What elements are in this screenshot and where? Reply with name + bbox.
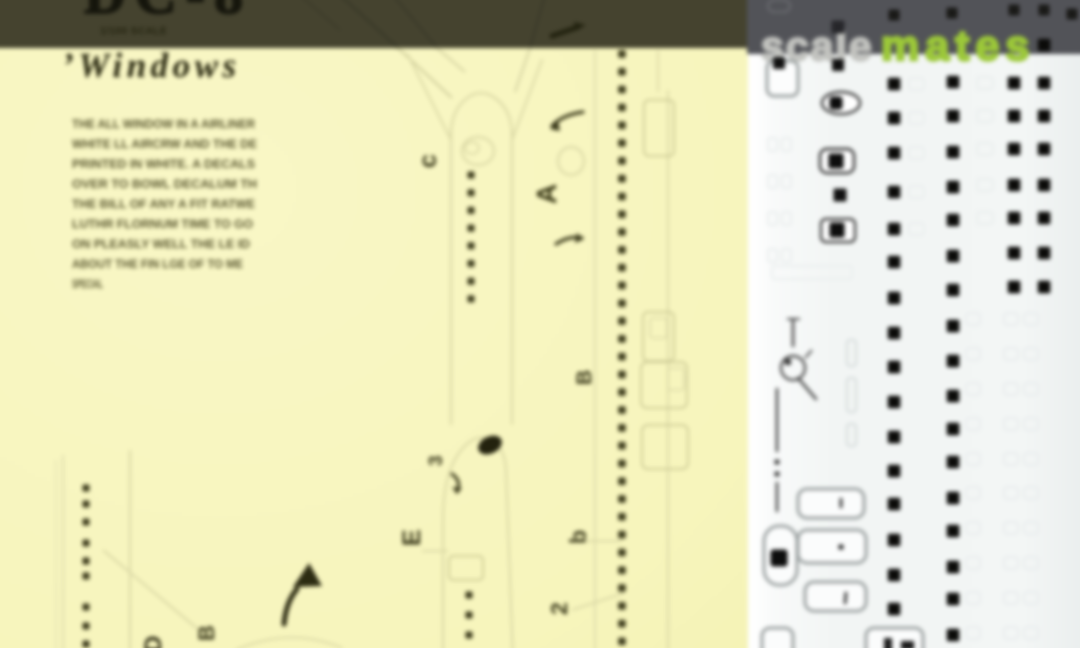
svg-text:B: B xyxy=(194,625,219,641)
svg-text:D: D xyxy=(140,636,167,648)
svg-text:LUTHR FLORNUM TIME TO GO: LUTHR FLORNUM TIME TO GO xyxy=(72,219,253,231)
svg-text:SPECIAL: SPECIAL xyxy=(72,279,103,291)
svg-text:2: 2 xyxy=(546,602,572,615)
svg-text:DC-8: DC-8 xyxy=(84,0,252,26)
svg-text:OVER TO BOWL DECALUM TH: OVER TO BOWL DECALUM TH xyxy=(72,179,257,191)
svg-text:E: E xyxy=(398,529,426,546)
svg-text:3: 3 xyxy=(426,455,447,466)
svg-text:mates: mates xyxy=(881,22,1035,70)
svg-text:ABOUT THE FIN LGE OF TO ME: ABOUT THE FIN LGE OF TO ME xyxy=(72,259,243,271)
svg-text:ON PLEASLY WELL THE LE ID: ON PLEASLY WELL THE LE ID xyxy=(72,239,250,251)
svg-text:’Windows: ’Windows xyxy=(62,46,241,85)
svg-text:PRINTED IN WHITE. A DECALS: PRINTED IN WHITE. A DECALS xyxy=(72,159,255,171)
svg-text:c: c xyxy=(414,154,442,168)
svg-text:THE ALL WINDOW IN A AIRLINER: THE ALL WINDOW IN A AIRLINER xyxy=(72,119,256,131)
svg-text:THE BILL OF ANY A FIT RATWE: THE BILL OF ANY A FIT RATWE xyxy=(72,199,255,211)
svg-text:1/100 SCALE: 1/100 SCALE xyxy=(100,26,167,37)
svg-text:B: B xyxy=(573,370,596,385)
svg-text:WHITE LL AIRCRW AND THE DE: WHITE LL AIRCRW AND THE DE xyxy=(72,139,257,151)
svg-text:A: A xyxy=(531,184,562,204)
